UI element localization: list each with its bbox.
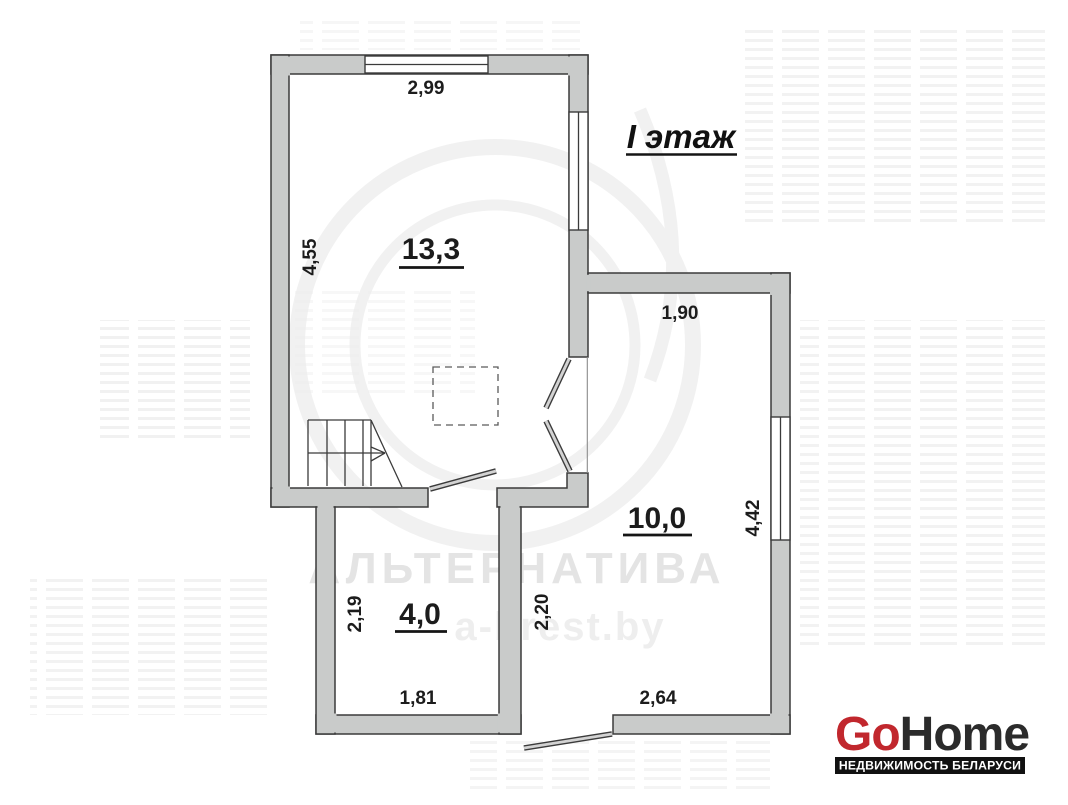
watermark-site: a-brest.by bbox=[454, 605, 665, 649]
wall-joint-patch bbox=[770, 275, 789, 296]
watermark-streaks bbox=[100, 320, 250, 440]
gohome-logo: GoHome НЕДВИЖИМОСТЬ БЕЛАРУСИ bbox=[835, 708, 1029, 774]
room1-area-label: 13,3 bbox=[402, 233, 460, 266]
wall-joint-patch bbox=[568, 57, 587, 76]
gohome-wordmark: GoHome bbox=[835, 708, 1029, 761]
dim-top-width: 2,99 bbox=[408, 78, 445, 99]
watermark-decor: АЛЬТЕРНАТИВА a-brest.by bbox=[30, 15, 1045, 793]
dim-bottom-right-width: 2,64 bbox=[640, 688, 677, 709]
wall-under-stairs bbox=[271, 488, 428, 507]
wall-room2-top bbox=[588, 273, 790, 293]
wall-room2-bottom bbox=[613, 715, 790, 734]
floor-title: I этаж bbox=[627, 118, 737, 155]
dim-small-bottom-width: 1,81 bbox=[400, 688, 437, 709]
wall-joint-patch bbox=[273, 487, 291, 507]
floor-plan: АЛЬТЕРНАТИВА a-brest.by bbox=[0, 0, 1068, 800]
logo-tagline-text: НЕДВИЖИМОСТЬ БЕЛАРУСИ bbox=[839, 759, 1021, 773]
dim-mid-height: 2,20 bbox=[532, 594, 553, 631]
wall-left bbox=[271, 55, 289, 507]
watermark-streaks bbox=[745, 25, 1045, 225]
dim-right-top-width: 1,90 bbox=[662, 303, 699, 324]
wall-room3-left bbox=[316, 507, 335, 734]
wall-room3-bottom bbox=[316, 715, 521, 734]
room2-area-label: 10,0 bbox=[628, 502, 686, 535]
watermark-streaks bbox=[470, 738, 770, 793]
wall-joint-patch bbox=[498, 714, 519, 733]
wall-joint-patch bbox=[318, 501, 334, 513]
stair-direction-arrow bbox=[371, 447, 385, 461]
logo-go-text: Go bbox=[835, 708, 900, 761]
dim-left-height: 4,55 bbox=[300, 238, 321, 275]
watermark-streaks bbox=[295, 285, 475, 395]
wall-joint-patch bbox=[273, 57, 291, 76]
wall-joint-patch bbox=[770, 714, 789, 733]
watermark-streaks bbox=[30, 575, 270, 715]
wall-joint-patch bbox=[587, 275, 590, 291]
room3-area-label: 4,0 bbox=[399, 598, 441, 631]
dim-right-height: 4,42 bbox=[743, 500, 764, 537]
logo-home-text: Home bbox=[900, 708, 1030, 761]
dim-small-left-height: 2,19 bbox=[345, 596, 366, 633]
wall-joint-patch bbox=[318, 714, 337, 733]
watermark-streaks bbox=[800, 320, 1045, 650]
door-leaf-double-lower bbox=[546, 421, 570, 471]
wall-joint-patch bbox=[501, 501, 520, 513]
watermark-streaks bbox=[300, 15, 580, 50]
door-leaf-double-upper bbox=[546, 359, 569, 408]
wall-middle bbox=[499, 507, 521, 734]
